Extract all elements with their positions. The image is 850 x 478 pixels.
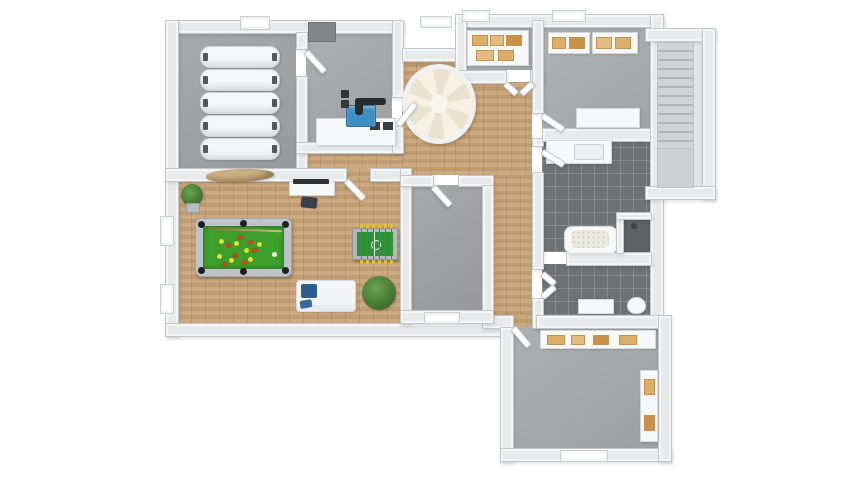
shelf-items <box>644 379 655 395</box>
wall-mounted-box-2 <box>341 100 349 108</box>
shelf-items <box>506 35 522 46</box>
pool-pocket <box>240 220 247 227</box>
shower-head <box>631 223 637 229</box>
tv-screen <box>293 179 329 184</box>
straight-staircase <box>657 42 694 150</box>
foosball-rod <box>379 229 380 259</box>
foosball-handle <box>372 260 375 264</box>
window-west-2 <box>160 284 174 314</box>
red-ball <box>242 260 247 265</box>
yellow-ball <box>234 241 239 246</box>
potted-plant-large <box>362 276 396 310</box>
foosball-handle <box>372 224 375 228</box>
yellow-ball <box>257 242 262 247</box>
shower-wall-north <box>616 212 652 220</box>
shelf-items <box>472 35 488 46</box>
yellow-ball <box>219 239 224 244</box>
wall-utility-north-west <box>400 175 434 187</box>
wc-cabinet <box>578 299 614 314</box>
tank-cap <box>203 145 208 153</box>
shelf-items <box>596 37 612 49</box>
shelving-unit-large-room-1 <box>548 32 590 54</box>
red-ball <box>226 243 231 248</box>
wall-tank-boiler-divider-upper <box>296 32 308 50</box>
wall-hall-east-3 <box>532 172 544 270</box>
storage-tank-5 <box>200 138 280 160</box>
sideboard-items <box>593 335 609 345</box>
foosball-handle <box>384 224 387 228</box>
tank-cap <box>203 99 208 107</box>
wall-hall-east-1 <box>532 20 544 114</box>
foosball-rod <box>385 229 386 259</box>
foosball-handle <box>360 224 363 228</box>
wall-stairwell-east <box>702 28 716 200</box>
tank-cap <box>203 53 208 61</box>
foosball-handle <box>366 224 369 228</box>
window-utility-south <box>424 312 460 324</box>
foosball-rod <box>391 229 392 259</box>
yellow-ball <box>229 258 234 263</box>
staircase-landing <box>657 148 694 188</box>
tall-shelf <box>640 370 658 442</box>
bathtub-mat <box>571 230 609 248</box>
wall-bath-wc-divider <box>566 252 652 266</box>
window-north-3 <box>462 10 490 22</box>
wall-utility-west <box>400 168 412 324</box>
wall-basement-room-west <box>500 327 514 462</box>
wall-wc-south-east <box>536 315 660 329</box>
wall-tank-boiler-divider-lower <box>296 76 308 182</box>
shelf-items <box>615 37 631 49</box>
tank-cap <box>203 76 208 84</box>
red-ball <box>233 253 238 258</box>
foosball-rod <box>367 229 368 259</box>
wall-stairwell-bottom <box>645 186 716 200</box>
pool-pocket <box>198 221 205 228</box>
foosball-handle <box>366 260 369 264</box>
shelf-items <box>644 415 655 431</box>
wall-exterior-bottom-recreation <box>165 323 514 337</box>
toilet <box>627 297 646 314</box>
yellow-ball <box>248 257 253 262</box>
pool-pocket <box>240 268 247 275</box>
seat-stool <box>300 196 317 209</box>
shelf-items <box>476 50 494 61</box>
shelving-unit-large-room-2 <box>592 32 638 54</box>
foosball-handle <box>378 224 381 228</box>
yellow-ball <box>217 254 222 259</box>
tank-cap <box>272 53 277 61</box>
shower-floor <box>622 216 650 252</box>
work-table <box>576 108 640 128</box>
wall-basement-room-east <box>658 315 672 462</box>
plant-pot <box>186 203 200 213</box>
foosball-handle <box>390 260 393 264</box>
yellow-ball <box>244 248 249 253</box>
sideboard-items <box>619 335 637 345</box>
shelf-items <box>490 35 504 46</box>
floorplan-canvas <box>0 0 850 478</box>
sofa-cushion <box>301 284 317 298</box>
pool-pocket <box>282 221 289 228</box>
hallway-floor-link <box>306 152 402 168</box>
sink-basin <box>574 144 604 160</box>
tank-cap <box>272 76 277 84</box>
hallway-floor-corridor <box>492 175 532 327</box>
counter-slot-2 <box>383 122 393 130</box>
tank-cap <box>272 145 277 153</box>
shelf-items <box>498 50 514 61</box>
shelf-items <box>552 37 566 49</box>
foosball-handle <box>390 224 393 228</box>
window-basement-room-south <box>560 450 608 462</box>
sideboard-items <box>547 335 565 345</box>
storage-tank-1 <box>200 46 280 68</box>
tank-cap <box>272 99 277 107</box>
storage-tank-4 <box>200 115 280 137</box>
foosball-rod <box>361 229 362 259</box>
cue-ball <box>272 252 277 257</box>
sideboard <box>540 330 656 349</box>
foosball-handle <box>378 260 381 264</box>
wall-utility-corridor-divider <box>482 185 494 317</box>
pool-table <box>195 218 292 277</box>
wall-hall-north <box>402 48 457 62</box>
tank-cap <box>203 122 208 130</box>
storage-tank-2 <box>200 69 280 91</box>
red-ball <box>238 235 243 240</box>
sideboard-items <box>571 335 585 345</box>
window-north-1 <box>240 16 270 30</box>
wall-niche-chimney <box>308 22 336 42</box>
red-ball <box>252 248 257 253</box>
window-north-4 <box>552 10 586 22</box>
window-west-1 <box>160 216 174 246</box>
foosball-handle <box>384 260 387 264</box>
tank-cap <box>272 122 277 130</box>
foosball-handle <box>360 260 363 264</box>
red-ball <box>248 240 253 245</box>
wall-mounted-box-1 <box>341 90 349 98</box>
shelving-unit-small-room <box>467 30 529 66</box>
storage-tank-3 <box>200 92 280 114</box>
foosball-rod <box>373 229 374 259</box>
pool-pocket <box>282 267 289 274</box>
shelf-items <box>569 37 585 49</box>
pool-pocket <box>198 267 205 274</box>
window-north-2 <box>420 16 452 28</box>
red-ball <box>223 262 228 267</box>
foosball-table <box>352 228 398 260</box>
boiler-pipe-vertical <box>355 98 363 115</box>
wall-exterior-top-west <box>165 20 404 34</box>
